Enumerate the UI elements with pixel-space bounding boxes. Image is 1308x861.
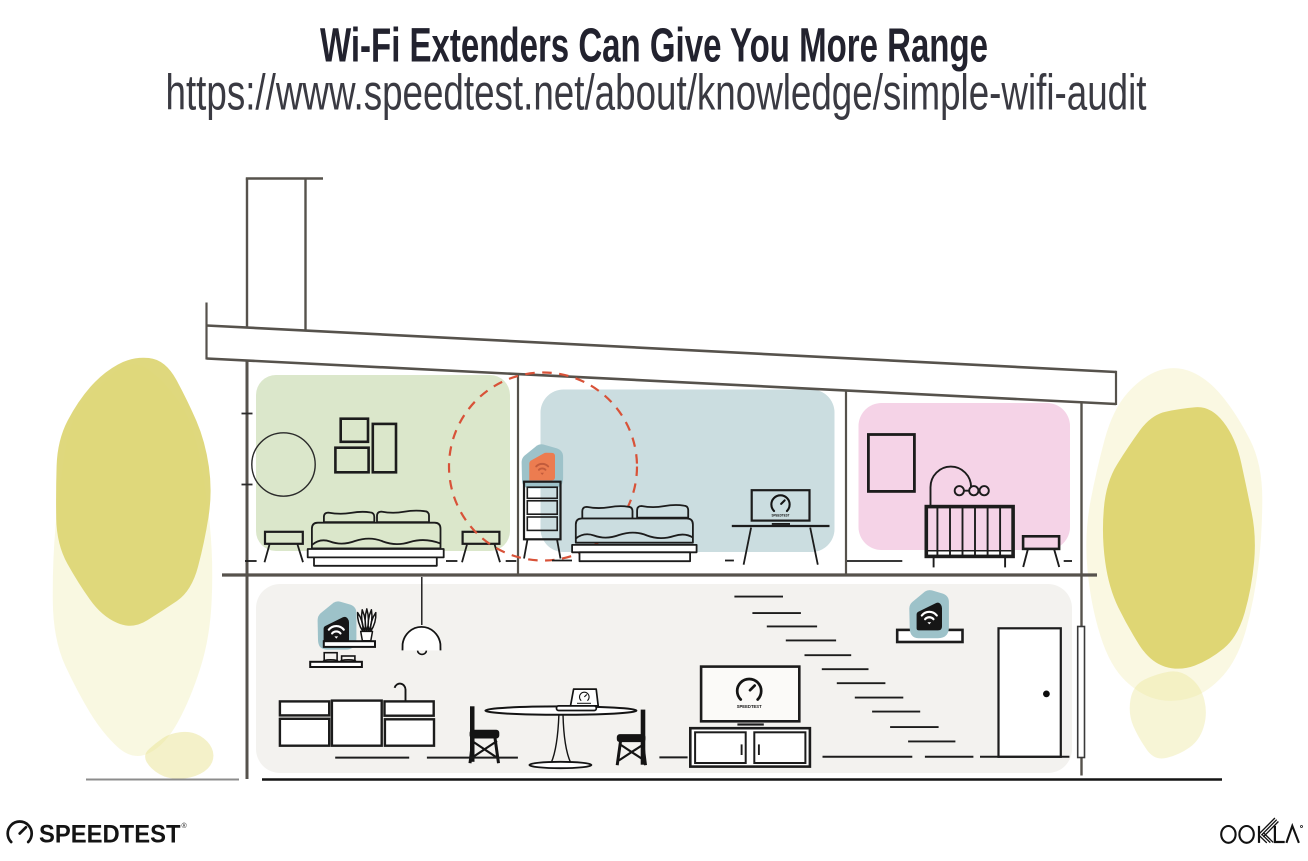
svg-text:SPEEDTEST: SPEEDTEST	[39, 822, 181, 849]
svg-text:®: ®	[182, 822, 188, 830]
svg-text:https://www.speedtest.net/abou: https://www.speedtest.net/about/knowledg…	[166, 65, 1147, 121]
svg-text:SPEEDTEST: SPEEDTEST	[737, 704, 762, 710]
svg-text:SPEEDTEST: SPEEDTEST	[772, 514, 791, 518]
